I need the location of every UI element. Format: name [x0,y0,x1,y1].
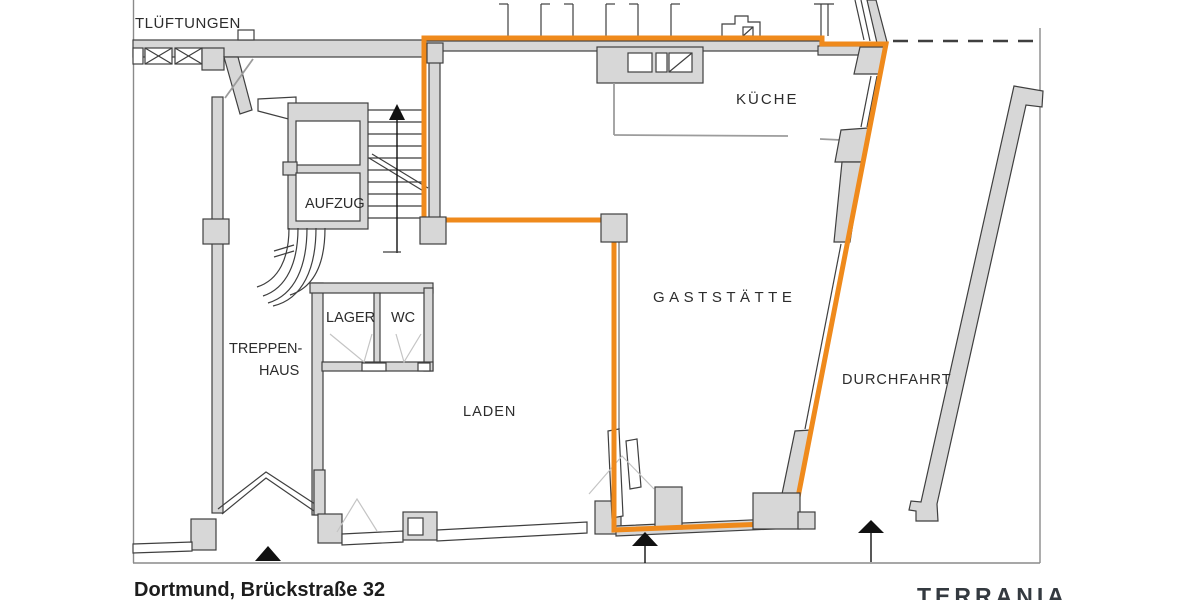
room-label-laden: LADEN [463,404,516,420]
kitchen: KÜCHE [597,47,841,140]
shop-front-wall: LADEN [318,404,621,545]
room-label-wc: WC [391,310,415,326]
room-label-kueche: KÜCHE [736,90,799,108]
unit-outline-highlight [424,38,886,530]
slanted-wall-top [867,0,887,43]
entrance-arrow-icon-left [255,546,281,561]
room-label-treppenhaus-2: HAUS [259,363,299,379]
room-label-gaststaette: GASTSTÄTTE [653,289,796,306]
elevator: AUFZUG [283,103,368,229]
entrance-arrow-icon-center [632,532,658,563]
slanted-facade [782,47,884,495]
room-label-lager: LAGER [326,310,375,326]
room-label-treppenhaus-1: TREPPEN- [229,341,302,357]
passage-outer-wall [909,86,1043,521]
address-title: Dortmund, Brückstraße 32 [134,579,385,600]
room-label-aufzug: AUFZUG [305,196,365,212]
stair-treads [368,110,424,218]
restaurant-front-wall [589,242,795,536]
vents-label: TLÜFTUNGEN [135,14,241,32]
storage-and-wc: LAGER WC [310,283,433,371]
shaft-symbol-1 [499,4,550,36]
room-label-durchfahrt: DURCHFAHRT [842,372,952,388]
brand-logo: TERRANIA [917,583,1068,600]
shaft-symbol-4 [814,4,834,36]
shaft-symbol-2 [564,4,615,36]
chimney-structure [722,16,760,38]
shaft-symbol-3 [629,4,680,36]
restaurant-door-leaf [626,439,641,489]
floor-plan: TREPPEN- HAUS AUFZUG [0,0,1200,600]
footer: Dortmund, Brückstraße 32 Grundriss EG (T… [134,579,1068,600]
entrance-arrow-icon-right [858,520,884,562]
